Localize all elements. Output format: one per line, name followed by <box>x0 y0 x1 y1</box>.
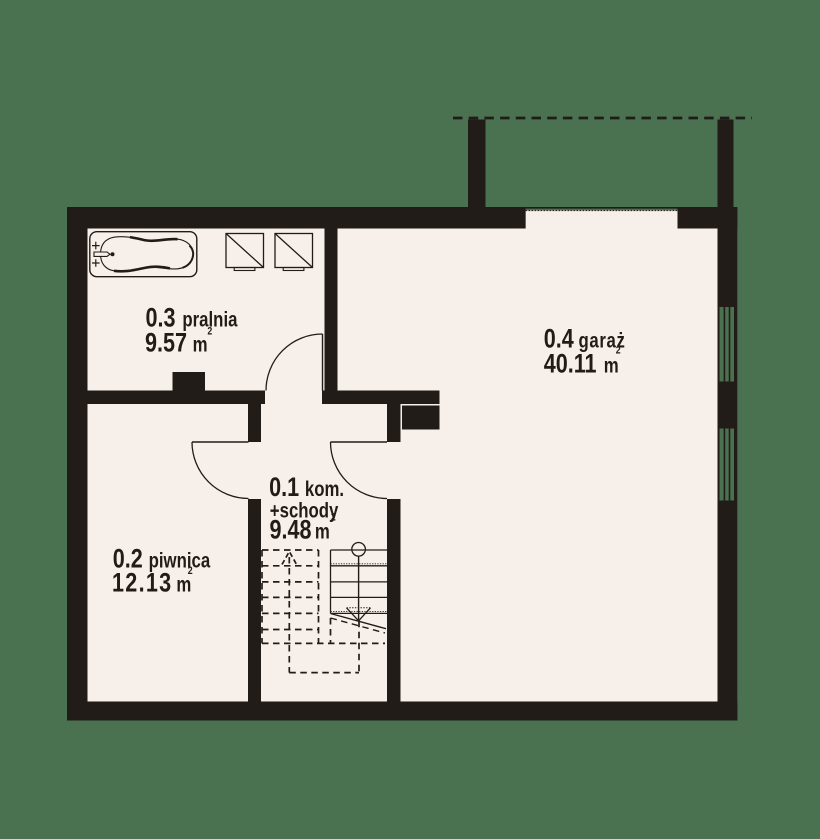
svg-text:m: m <box>176 574 191 597</box>
svg-text:12.13: 12.13 <box>112 569 172 599</box>
svg-text:2: 2 <box>331 512 336 524</box>
svg-text:kom.: kom. <box>305 479 344 502</box>
svg-text:9.57: 9.57 <box>145 328 187 358</box>
svg-text:m: m <box>604 355 619 378</box>
svg-text:2: 2 <box>616 345 621 357</box>
svg-text:m: m <box>315 521 330 544</box>
svg-text:40.11: 40.11 <box>544 349 597 379</box>
svg-text:9.48: 9.48 <box>270 515 312 545</box>
svg-text:2: 2 <box>207 326 212 338</box>
svg-text:2: 2 <box>188 565 193 577</box>
svg-text:0.1: 0.1 <box>269 473 299 503</box>
svg-text:m: m <box>193 334 208 357</box>
